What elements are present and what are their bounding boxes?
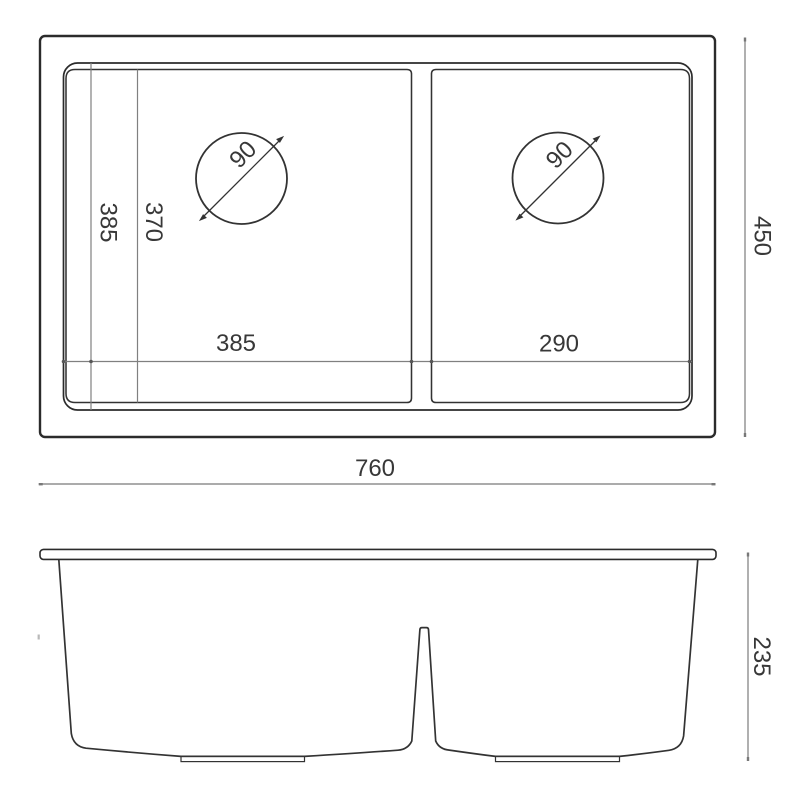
svg-text:760: 760 — [355, 455, 395, 482]
svg-text:385: 385 — [95, 202, 122, 242]
svg-text:290: 290 — [539, 331, 579, 358]
svg-text:385: 385 — [216, 330, 256, 357]
svg-text:450: 450 — [749, 216, 776, 256]
svg-text:370: 370 — [140, 202, 167, 242]
svg-text:235: 235 — [748, 636, 775, 676]
